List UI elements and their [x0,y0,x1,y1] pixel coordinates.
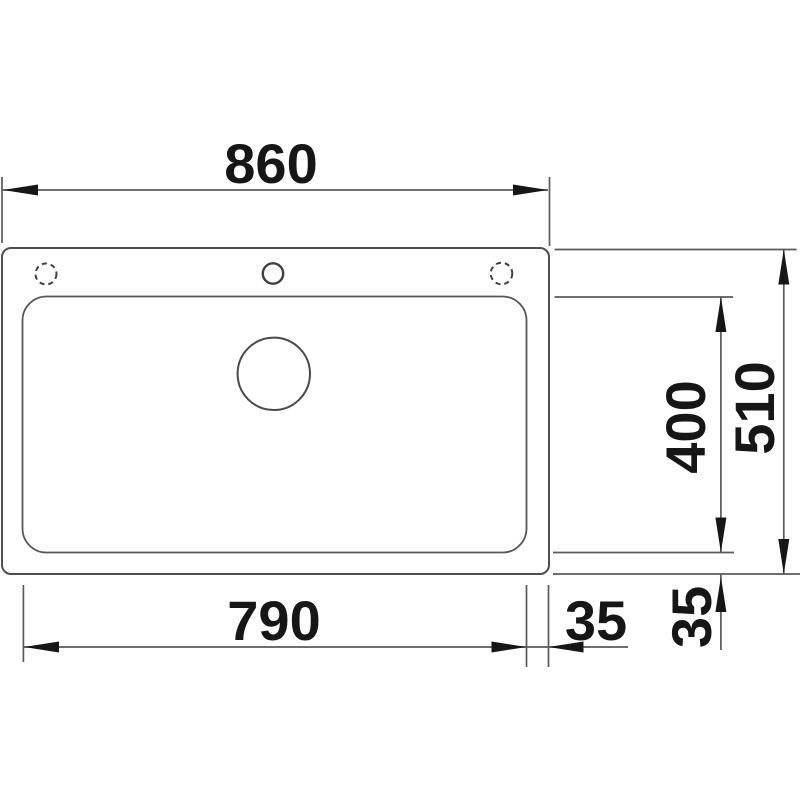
svg-text:400: 400 [654,380,717,473]
svg-text:35: 35 [660,586,723,648]
svg-text:35: 35 [565,589,627,652]
svg-text:510: 510 [723,361,786,454]
svg-text:790: 790 [227,589,320,652]
svg-text:860: 860 [224,132,317,195]
